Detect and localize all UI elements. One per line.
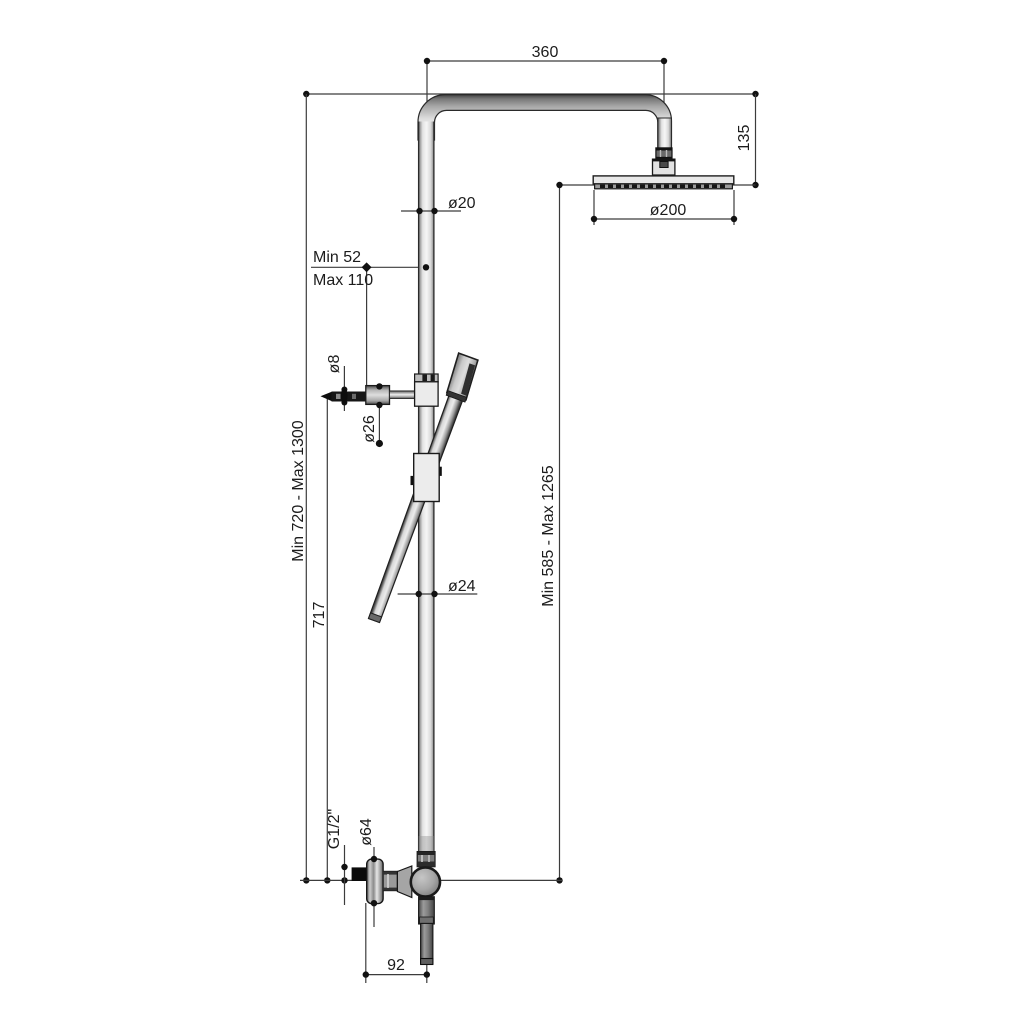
svg-text:Max 110: Max 110 [313,272,373,289]
svg-text:135: 135 [736,125,753,152]
svg-text:717: 717 [311,602,328,629]
svg-text:ø64: ø64 [358,818,375,846]
svg-text:ø20: ø20 [448,195,476,212]
svg-text:ø8: ø8 [326,355,343,374]
svg-text:G1/2": G1/2" [326,809,343,849]
svg-text:ø200: ø200 [650,202,687,219]
svg-text:Min 52: Min 52 [313,249,361,266]
svg-text:360: 360 [532,44,559,61]
svg-text:92: 92 [387,957,405,974]
svg-text:Min 585 - Max 1265: Min 585 - Max 1265 [540,465,557,607]
svg-text:ø24: ø24 [448,578,476,595]
svg-text:ø26: ø26 [361,415,378,443]
svg-text:Min 720 - Max 1300: Min 720 - Max 1300 [290,420,307,562]
